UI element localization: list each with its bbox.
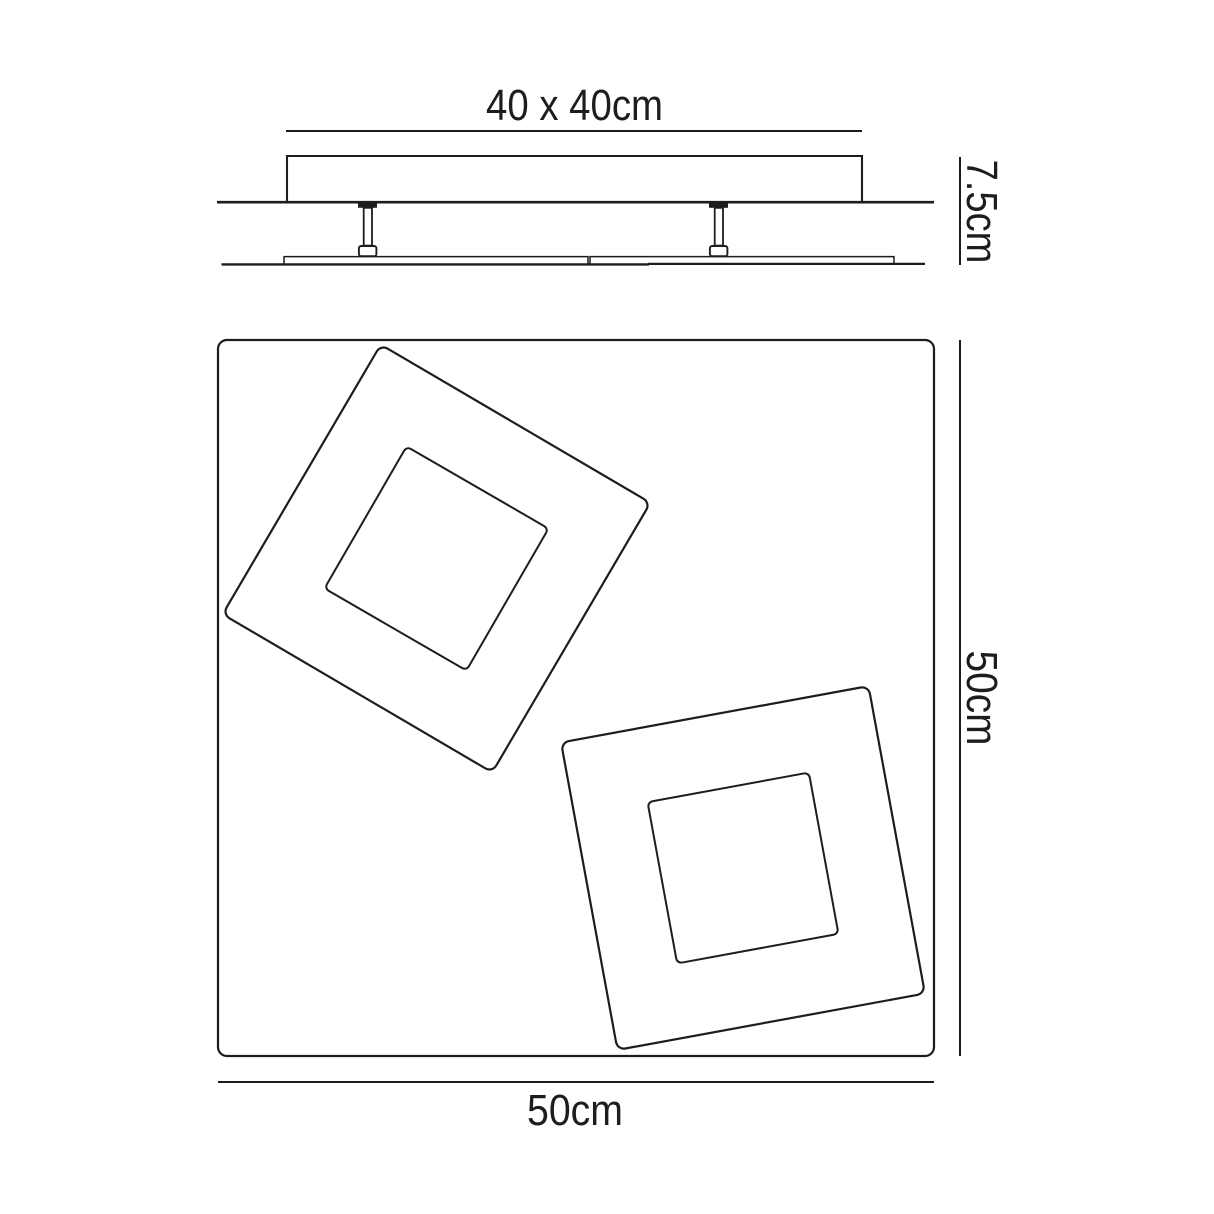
svg-text:7.5cm: 7.5cm: [957, 160, 1006, 264]
svg-text:50cm: 50cm: [957, 651, 1006, 746]
svg-text:40 x 40cm: 40 x 40cm: [486, 81, 663, 130]
svg-text:50cm: 50cm: [527, 1086, 623, 1135]
